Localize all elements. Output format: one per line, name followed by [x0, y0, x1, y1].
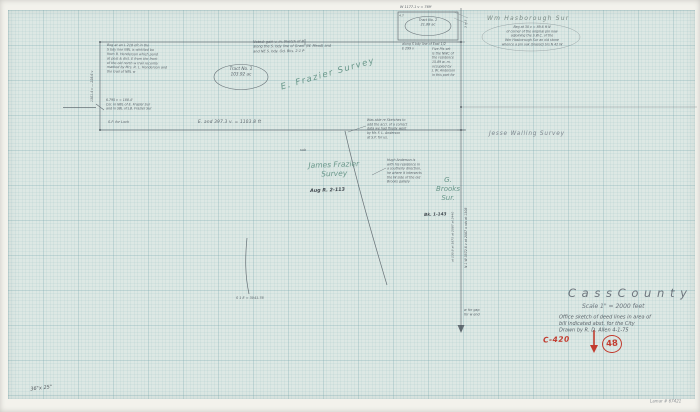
east-line-stations-left: at 130.8 at 1875 at 2087 at 2440 — [451, 157, 455, 262]
noted-annotation: Noted: gain v. in. Sketch of B along the… — [253, 39, 363, 54]
frazier-corner-note: 6.795 v = 188.4' Cor. in NBL of E. Frazi… — [106, 98, 186, 111]
south-line-measurement: E. and 397.3 v. = 1103.8 ft — [198, 119, 328, 125]
scan-reference: Lamar # 67421 — [650, 399, 700, 404]
branch-line-measurement: S 1 E = 3041.76 — [236, 296, 296, 301]
top-crossing-label: 3 in 3 — [464, 6, 468, 28]
south-arrowhead — [458, 325, 465, 333]
file-number: C-420 — [543, 335, 570, 346]
survey-sheet: Beg at an L 218 eft in the S bdy line NB… — [0, 0, 700, 412]
beginning-call-note: Beg at an L 218 eft in the S bdy line NB… — [107, 43, 182, 75]
james-frazier-survey-label: James Frazier Survey — [303, 159, 366, 180]
west-line-distance-label: 1301.4 v — 228.6 v — [90, 44, 94, 102]
sketches-note: Was able re Sketches to add the accr. of… — [367, 118, 432, 140]
oval-begin-note: Beg at 30 v = 89.6 ft N of corner of the… — [486, 25, 578, 47]
sub-note: sub — [300, 148, 315, 153]
county-title: C a s s C o u n t y — [568, 286, 688, 302]
g-brooks-survey-label: G. Brooks Sur. — [427, 176, 469, 202]
gap-note: w for gap for w end — [464, 308, 499, 317]
tract2-label: Tract No. 2 21.88 ac — [406, 18, 450, 27]
office-sketch-note: Office sketch of deed lines in area of b… — [559, 314, 689, 334]
wm-hasborough-survey-label: Wm Hasborough Sur — [487, 15, 569, 23]
sp-lock-note: S.P. for Lock — [108, 120, 168, 125]
five-points-note: Five Pts set is the NWC of the residence… — [432, 47, 477, 77]
tract1-label: Tract No. 1 103.92 ac — [214, 66, 268, 77]
stamp-number: 48 — [606, 339, 619, 350]
red-down-arrow-head — [590, 345, 598, 353]
diagonal-road-line — [345, 131, 387, 285]
jesse-walling-survey-label: Jesse Walling Survey — [489, 131, 565, 139]
east-line-bearing-right: N 1 W 3572.6 v at 2087 x rds at 1308 — [464, 153, 468, 268]
scale-label: Scale 1" = 2000 feet — [582, 303, 645, 311]
west-branch-line — [246, 238, 249, 294]
